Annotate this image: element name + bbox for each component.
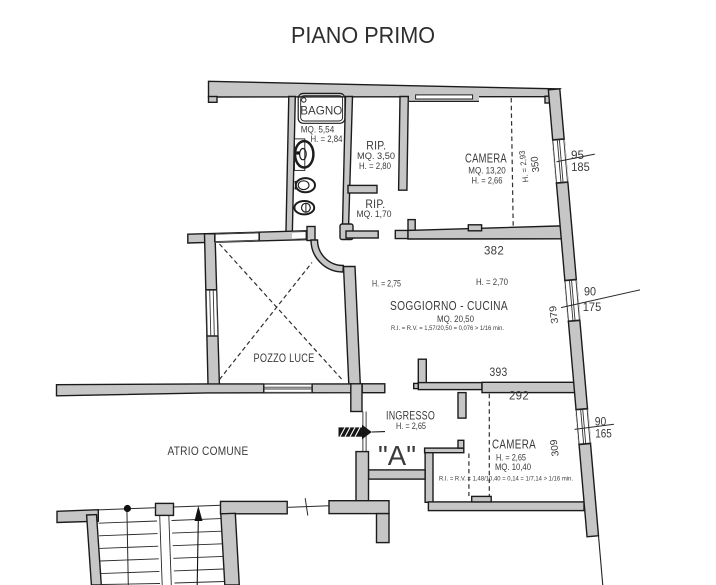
svg-text:BAGNO: BAGNO bbox=[300, 103, 342, 117]
svg-text:382: 382 bbox=[484, 246, 504, 258]
svg-text:MQ. 3,50: MQ. 3,50 bbox=[357, 151, 395, 161]
svg-text:292: 292 bbox=[509, 390, 529, 402]
svg-text:H. = 2,65: H. = 2,65 bbox=[396, 421, 426, 431]
svg-text:MQ. 10,40: MQ. 10,40 bbox=[495, 462, 531, 472]
svg-text:H. = 2,65: H. = 2,65 bbox=[496, 452, 526, 462]
svg-text:H. = 2,70: H. = 2,70 bbox=[476, 277, 508, 287]
svg-text:R.I. = R.V. = 1,48/10,40 = 0,1: R.I. = R.V. = 1,48/10,40 = 0,14 = 1/7,14… bbox=[439, 476, 573, 483]
svg-text:SOGGIORNO - CUCINA: SOGGIORNO - CUCINA bbox=[390, 299, 508, 313]
svg-text:CAMERA: CAMERA bbox=[465, 151, 507, 165]
svg-text:MQ. 1,70: MQ. 1,70 bbox=[357, 209, 392, 219]
svg-text:H. = 2,66: H. = 2,66 bbox=[472, 175, 503, 185]
svg-text:R.I. = R.V. = 1,57/20,50 = 0,0: R.I. = R.V. = 1,57/20,50 = 0,076 > 1/16 … bbox=[391, 325, 504, 332]
svg-text:185: 185 bbox=[571, 160, 590, 174]
svg-text:MQ. 13,20: MQ. 13,20 bbox=[468, 166, 506, 176]
svg-text:379: 379 bbox=[548, 305, 561, 325]
svg-text:H. = 2,75: H. = 2,75 bbox=[372, 278, 401, 288]
svg-text:175: 175 bbox=[583, 300, 602, 314]
svg-text:350: 350 bbox=[529, 155, 542, 173]
svg-text:POZZO LUCE: POZZO LUCE bbox=[254, 353, 315, 365]
svg-text:MQ. 5,54: MQ. 5,54 bbox=[301, 125, 335, 135]
svg-text:"A": "A" bbox=[378, 440, 416, 471]
svg-text:ATRIO COMUNE: ATRIO COMUNE bbox=[168, 446, 249, 458]
svg-text:H. = 2,84: H. = 2,84 bbox=[311, 134, 343, 144]
svg-text:309: 309 bbox=[549, 438, 562, 457]
svg-text:MQ. 20,50: MQ. 20,50 bbox=[437, 314, 474, 324]
svg-text:CAMERA: CAMERA bbox=[492, 437, 536, 451]
svg-text:165: 165 bbox=[595, 427, 612, 441]
svg-text:393: 393 bbox=[490, 367, 508, 379]
svg-text:90: 90 bbox=[584, 284, 596, 298]
svg-text:PIANO PRIMO: PIANO PRIMO bbox=[291, 22, 435, 48]
svg-text:H. = 2,80: H. = 2,80 bbox=[359, 161, 391, 171]
